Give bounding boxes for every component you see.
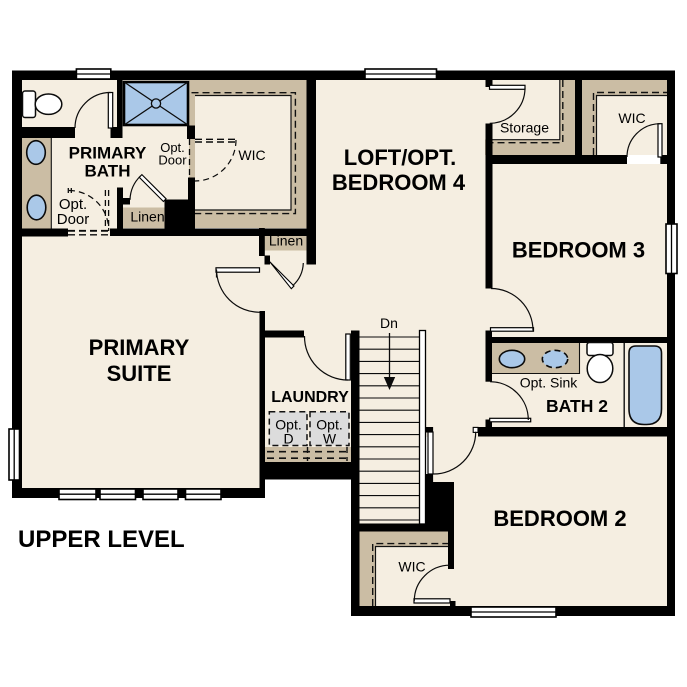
svg-text:BATH: BATH <box>85 162 131 181</box>
svg-text:Linen: Linen <box>130 209 164 225</box>
svg-text:BEDROOM 3: BEDROOM 3 <box>512 238 645 263</box>
svg-text:WIC: WIC <box>618 110 645 126</box>
svg-text:LAUNDRY: LAUNDRY <box>271 389 349 406</box>
svg-text:Door: Door <box>158 153 187 168</box>
svg-text:BEDROOM 4: BEDROOM 4 <box>332 170 466 195</box>
svg-text:Door: Door <box>57 211 90 228</box>
svg-text:LOFT/OPT.: LOFT/OPT. <box>344 145 456 170</box>
svg-text:WIC: WIC <box>238 147 265 163</box>
svg-text:Storage: Storage <box>500 120 549 136</box>
svg-text:PRIMARY: PRIMARY <box>89 335 190 360</box>
svg-text:SUITE: SUITE <box>107 361 172 386</box>
svg-text:W: W <box>323 431 337 447</box>
svg-text:Opt. Sink: Opt. Sink <box>520 375 579 391</box>
svg-text:WIC: WIC <box>398 559 425 575</box>
svg-text:PRIMARY: PRIMARY <box>69 144 147 163</box>
svg-text:BEDROOM 2: BEDROOM 2 <box>493 506 626 531</box>
svg-text:Linen: Linen <box>269 233 303 249</box>
svg-text:D: D <box>283 431 293 447</box>
svg-text:UPPER LEVEL: UPPER LEVEL <box>18 526 185 553</box>
svg-text:Dn: Dn <box>380 315 398 331</box>
svg-text:BATH 2: BATH 2 <box>546 396 608 416</box>
